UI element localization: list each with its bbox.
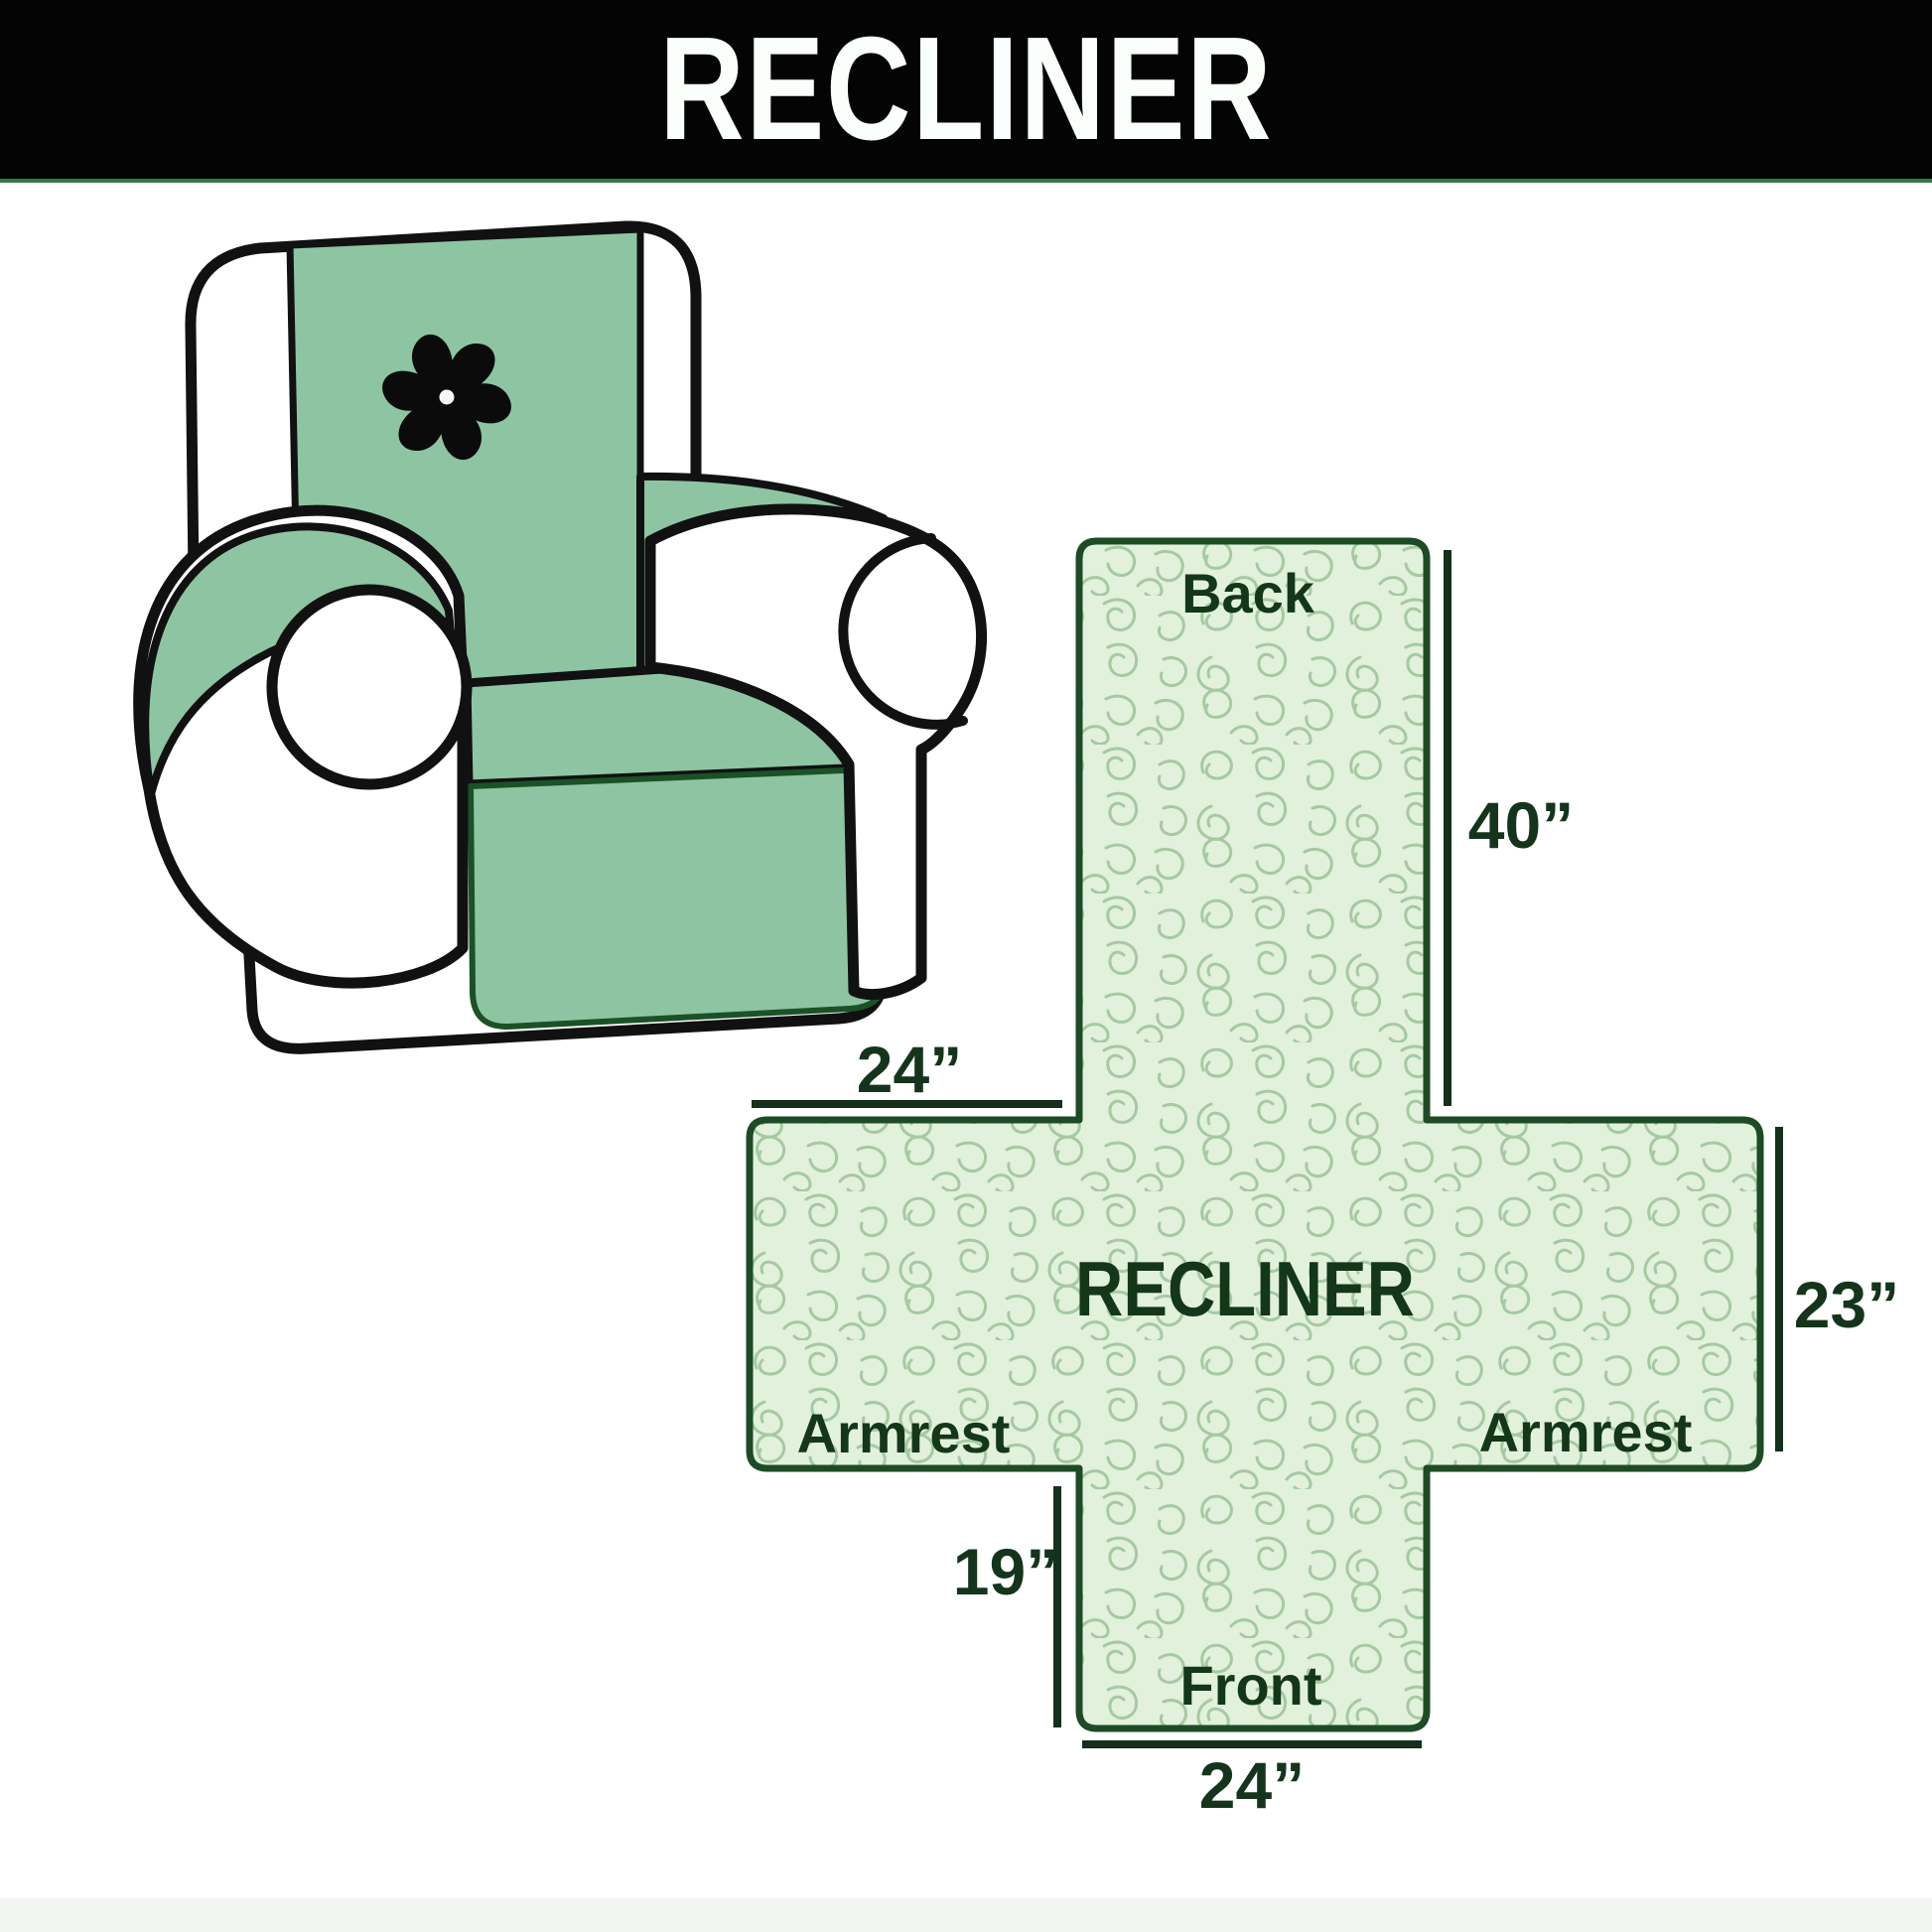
label-back: Back: [1181, 562, 1315, 624]
dim-label-front-length: 19”: [953, 1535, 1058, 1608]
left-armrest-front: [272, 590, 467, 784]
scene: Back RECLINER Armrest Armrest Front 24” …: [0, 0, 1932, 1932]
footer-strip: [0, 1898, 1932, 1932]
label-armrest-left: Armrest: [797, 1402, 1011, 1464]
dim-label-back-length: 40”: [1468, 788, 1574, 862]
label-front: Front: [1179, 1654, 1321, 1717]
infographic-page: RECLINER: [0, 0, 1932, 1932]
label-recliner: RECLINER: [1075, 1245, 1415, 1332]
dim-label-side-height: 23”: [1794, 1268, 1899, 1341]
dim-label-front-bottom-width: 24”: [1199, 1748, 1305, 1822]
label-armrest-right: Armrest: [1479, 1401, 1693, 1463]
recliner-illustration: [139, 226, 982, 1048]
dim-label-armrest-top-width: 24”: [857, 1033, 962, 1106]
front-skirt-cover: [471, 768, 890, 1027]
